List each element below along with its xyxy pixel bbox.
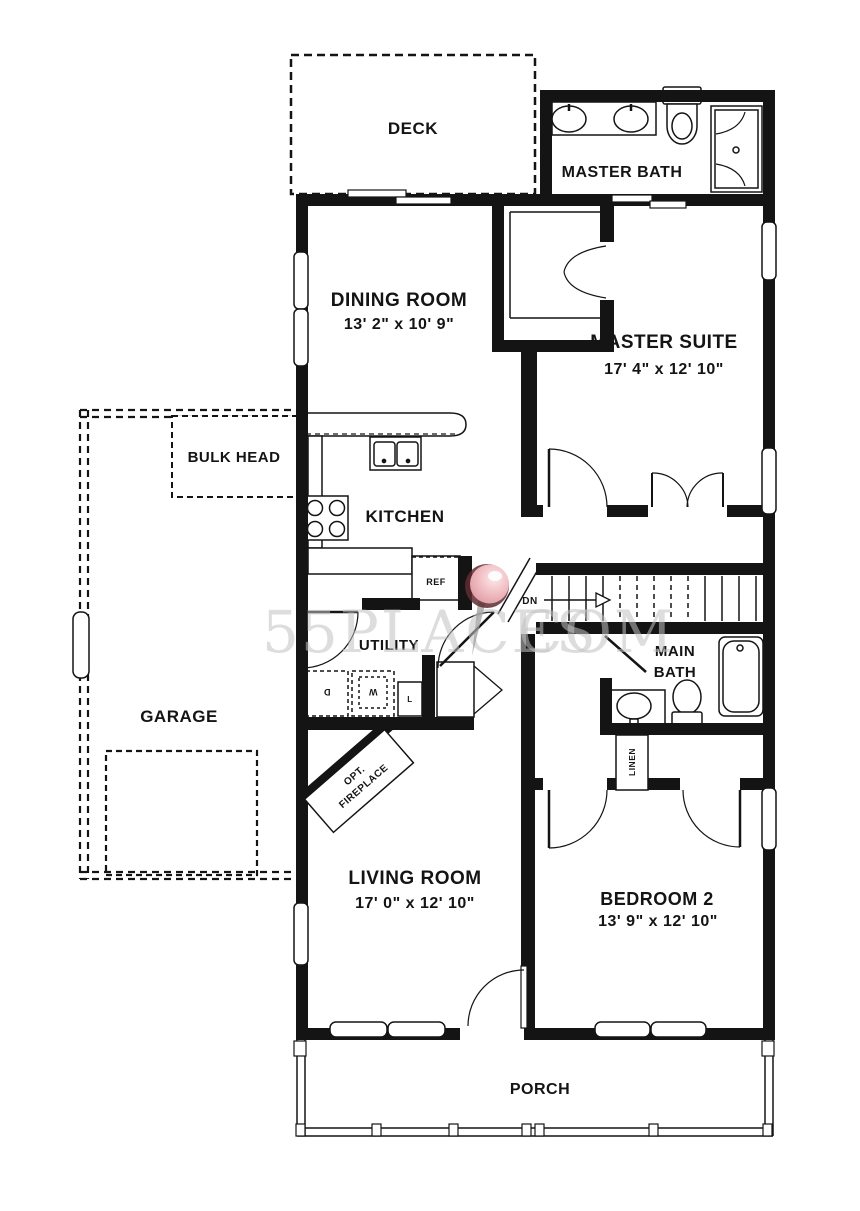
master-bath-label: MASTER BATH — [562, 164, 683, 181]
bedroom-front-window — [595, 1022, 650, 1037]
bedroom-window — [762, 788, 776, 850]
deck-label: DECK — [388, 119, 438, 138]
floorplan: LINEN OPT. FIREPLACE DECK MASTER BATH DI… — [0, 0, 860, 1211]
dryer-label: D — [324, 687, 331, 697]
dining-room-label: DINING ROOM — [331, 290, 467, 311]
bath-slider-panel — [612, 195, 652, 202]
living-room-dimensions: 17' 0" x 12' 10" — [355, 895, 475, 912]
kitchen-peninsula-counter — [302, 413, 466, 436]
suite-window — [762, 222, 776, 280]
map-pin-icon — [470, 565, 509, 604]
floorplan-canvas: LINEN OPT. FIREPLACE DECK MASTER BATH DI… — [0, 0, 860, 1211]
refrigerator-label: REF — [426, 577, 446, 587]
kitchen-label: KITCHEN — [365, 507, 444, 526]
living-front-window — [330, 1022, 387, 1037]
garage-side-window — [73, 612, 89, 678]
deck-slider-panel — [348, 190, 406, 197]
master-suite-dimensions: 17' 4" x 12' 10" — [604, 361, 724, 378]
suite-window — [762, 448, 776, 514]
map-pin-highlight — [488, 571, 502, 581]
dining-room-dimensions: 13' 2" x 10' 9" — [344, 316, 454, 333]
linen-closet: LINEN — [616, 735, 648, 790]
bath-slider-panel — [650, 201, 686, 208]
main-bath-label-line2: BATH — [654, 664, 697, 681]
master-suite-label: MASTER SUITE — [590, 332, 737, 353]
garage-label: GARAGE — [140, 707, 218, 726]
bulk-head-label: BULK HEAD — [188, 449, 281, 466]
washer-label: W — [369, 687, 378, 697]
bedroom-2-dimensions: 13' 9" x 12' 10" — [598, 913, 718, 930]
dining-window — [294, 252, 308, 309]
toilet-bowl — [673, 680, 701, 714]
front-door-leaf — [521, 966, 527, 1028]
linen-label: LINEN — [627, 748, 637, 776]
watermark-text-right: COM — [518, 598, 675, 666]
kitchen-bottom-counter — [308, 548, 412, 574]
dining-window — [294, 309, 308, 366]
living-front-window — [388, 1022, 445, 1037]
living-window — [294, 903, 308, 965]
deck-slider-panel — [396, 197, 451, 204]
bedroom-2-label: BEDROOM 2 — [600, 889, 714, 909]
bedroom-front-window — [651, 1022, 706, 1037]
sink — [617, 693, 651, 719]
living-room-label: LIVING ROOM — [348, 868, 481, 889]
porch-label: PORCH — [510, 1081, 570, 1098]
laundry-tub-label: L — [407, 695, 412, 704]
